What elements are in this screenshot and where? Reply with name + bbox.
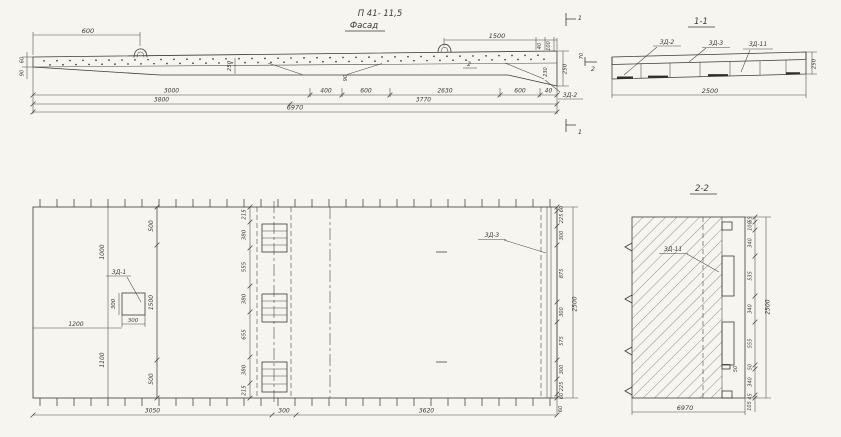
dim-label: 3050 bbox=[145, 408, 160, 415]
embed-label-zd11: ЗД-11 bbox=[749, 41, 767, 48]
dim-label: 2500 bbox=[572, 296, 579, 311]
dim-label: 40 bbox=[545, 88, 553, 95]
dim-label: 250 bbox=[563, 63, 569, 74]
dim-label: 300 bbox=[128, 318, 139, 324]
dim-label: 250 bbox=[227, 60, 233, 71]
dim-label: 60 bbox=[558, 406, 564, 412]
dim-label: 300 bbox=[559, 365, 565, 375]
dim-label: 500 bbox=[148, 220, 155, 232]
vent-grids bbox=[262, 224, 287, 392]
dim-label: 50 bbox=[748, 364, 754, 370]
dim-label: 300 bbox=[278, 408, 290, 415]
break-marks bbox=[625, 243, 632, 395]
section-mark-1: 1 bbox=[578, 128, 582, 136]
dim-label: 380 bbox=[242, 293, 248, 304]
dim-label: 6970 bbox=[677, 404, 694, 412]
dim-label: 1500 bbox=[148, 295, 155, 310]
dim-label: 2500 bbox=[702, 87, 719, 95]
embed-label-zd1: ЗД-1 bbox=[112, 269, 127, 276]
dim-label: 1100 bbox=[99, 352, 106, 367]
dim-label: 400 bbox=[320, 88, 332, 95]
dim-label: 300 bbox=[559, 231, 565, 241]
dim-label: 90 bbox=[20, 70, 26, 76]
dim-label: 6970 bbox=[287, 104, 304, 112]
dim-label: 105 bbox=[747, 401, 753, 411]
dim-label: 45 bbox=[748, 393, 754, 399]
drawing-sheet: П 41- 11,5 Фасад 600 1500 40 100 250 230… bbox=[0, 0, 841, 437]
dim-label: 100 bbox=[546, 41, 552, 51]
dim-label: 3770 bbox=[416, 97, 431, 104]
facade-title: Фасад bbox=[350, 21, 378, 31]
dim-label: 600 bbox=[82, 27, 94, 35]
section-title: 2-2 bbox=[695, 184, 709, 194]
dim-label: 250 bbox=[812, 58, 818, 69]
dim-label: 380 bbox=[242, 229, 248, 240]
dim-label: 225 bbox=[559, 214, 565, 224]
section-1-1: 1-1 ЗД-2 ЗД-3 ЗД-11 2500 250 bbox=[612, 17, 818, 98]
facade-view: 600 1500 40 100 250 230 70 60 90 250 90 … bbox=[20, 13, 598, 136]
dim-chain: 3000400600263060040 bbox=[31, 88, 560, 98]
dim-label: 340 bbox=[748, 238, 754, 248]
dim-label: 500 bbox=[148, 373, 155, 385]
dim-label: 100 bbox=[748, 221, 754, 231]
dim-label: 2500 bbox=[765, 299, 772, 314]
dim-chain: 5001500500 bbox=[148, 205, 159, 401]
dim-label: 655 bbox=[242, 329, 248, 340]
dim-chain: 6970 bbox=[31, 104, 560, 115]
dim-chain: 215380555380655380215 bbox=[242, 205, 253, 401]
lifting-loop bbox=[438, 44, 451, 52]
dim-label: 1200 bbox=[68, 321, 83, 328]
dim-label: 340 bbox=[748, 377, 754, 387]
dim-label: 50 bbox=[733, 366, 739, 372]
dim-label: 380 bbox=[242, 364, 248, 375]
dim-label: 1500 bbox=[489, 32, 506, 40]
panel-outline bbox=[33, 51, 557, 86]
dim-label: 60 bbox=[559, 206, 565, 212]
dim-label: 225 bbox=[559, 382, 565, 392]
dim-label: 40 bbox=[537, 43, 543, 49]
embed-label-zd3: ЗД-3 bbox=[709, 40, 724, 47]
embed-label-zd2: ЗД-2 bbox=[660, 39, 675, 46]
dim-label: 600 bbox=[360, 88, 372, 95]
dim-label: 3620 bbox=[419, 408, 434, 415]
dim-label: 215 bbox=[242, 385, 248, 396]
plan-view: ЗД-1 300 300 1200 1000 1100 ЗД-3 2500 60 bbox=[33, 199, 579, 414]
dim-label: 60 bbox=[559, 393, 565, 399]
dim-label: 3000 bbox=[164, 88, 179, 95]
dim-label: 90 bbox=[343, 75, 349, 81]
section-title: 1-1 bbox=[694, 17, 708, 27]
dim-label: 875 bbox=[559, 269, 565, 279]
dim-label: 60 bbox=[20, 57, 26, 63]
engineering-drawing: П 41- 11,5 Фасад 600 1500 40 100 250 230… bbox=[0, 0, 841, 437]
embed-zd1 bbox=[122, 293, 145, 315]
dim-label: 300 bbox=[559, 307, 565, 317]
embedded-plates bbox=[617, 73, 800, 77]
panel-slab-section bbox=[612, 52, 806, 65]
dim-label: 2630 bbox=[437, 88, 452, 95]
dim-label: 535 bbox=[748, 271, 754, 281]
concrete-hatch bbox=[632, 217, 722, 398]
dim-chain: 6022530087530057530022560 bbox=[555, 205, 565, 401]
embed-label-zd3: ЗД-3 bbox=[485, 232, 500, 239]
dim-chain: 651003405353405555034045 bbox=[748, 215, 758, 401]
section-mark-2: 2 bbox=[591, 65, 595, 73]
embed-label-zd11: ЗД-11 bbox=[664, 246, 682, 253]
dim-label: 555 bbox=[242, 261, 248, 272]
dim-label: 300 bbox=[111, 298, 117, 309]
dim-chain: 30503003620 bbox=[31, 408, 560, 418]
drawing-title: П 41- 11,5 bbox=[358, 9, 403, 19]
embed-label-zd2: ЗД-2 bbox=[563, 92, 578, 99]
dim-label: 575 bbox=[559, 336, 565, 346]
dim-label: 215 bbox=[242, 209, 248, 220]
dim-label: 70 bbox=[579, 53, 585, 59]
dim-label: 555 bbox=[748, 339, 754, 349]
dim-label: 1000 bbox=[99, 244, 106, 259]
dim-label: 600 bbox=[514, 88, 526, 95]
section-mark-2: 2 bbox=[467, 61, 471, 68]
section-mark-1: 1 bbox=[578, 14, 582, 22]
dim-label: 3800 bbox=[154, 97, 169, 104]
dim-label: 230 bbox=[543, 67, 549, 77]
dim-label: 340 bbox=[748, 304, 754, 314]
